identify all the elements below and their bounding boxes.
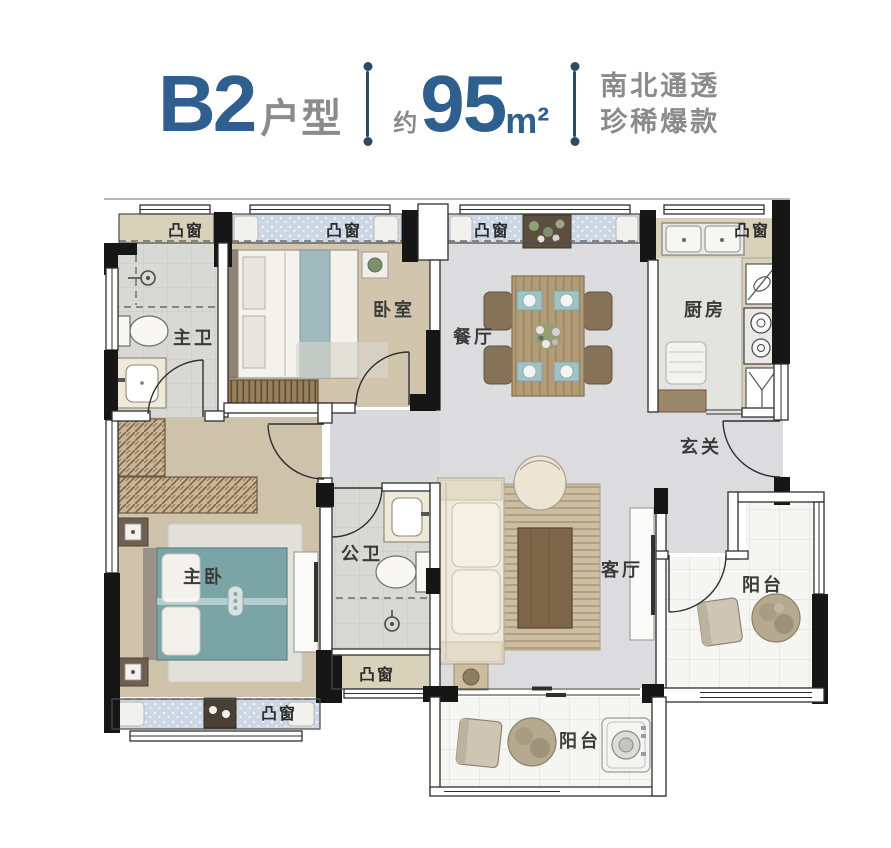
bedroom2-rug [296, 342, 388, 378]
bay-window-label: 凸窗 [261, 704, 297, 723]
room-label-master-bath: 主卫 [173, 327, 215, 348]
master-tv-console [294, 552, 318, 652]
room-label-guest-bath: 公卫 [341, 544, 383, 564]
master-bay-tray [204, 698, 236, 728]
bay-window-label: 凸窗 [359, 665, 395, 684]
living-coffee-table [518, 528, 572, 628]
room-label-entry: 玄关 [680, 436, 722, 457]
room-label-side-balcony: 阳台 [742, 574, 784, 595]
bedroom2-bench [226, 380, 318, 404]
bay-window-label: 凸窗 [326, 221, 362, 240]
floorplan-drawing: 主卫 卧室 餐厅 厨房 玄关 公卫 主卧 客厅 阳台 阳台 凸窗 凸窗 凸窗 凸… [0, 0, 891, 848]
master-nightstand-bottom [118, 658, 148, 686]
room-label-dining: 餐厅 [452, 326, 495, 347]
top-windows [140, 205, 764, 214]
dining-chair [584, 346, 612, 384]
master-bath-toilet [116, 316, 168, 346]
living-accent-chair [514, 456, 566, 510]
side-balcony-chair [697, 597, 743, 646]
room-label-living: 客厅 [601, 559, 643, 580]
south-balcony-chair [456, 718, 503, 768]
bedroom2-plant-icon [368, 258, 382, 272]
master-bed [143, 548, 287, 660]
bay-window-label: 凸窗 [474, 221, 510, 240]
living-side-table [454, 664, 488, 690]
side-balcony-plant [752, 594, 800, 642]
centerpiece-flowers-icon [535, 323, 561, 349]
room-label-kitchen: 厨房 [684, 299, 726, 320]
bay-window-label: 凸窗 [734, 221, 770, 240]
kitchen-sink [662, 223, 744, 255]
entry-shoe-cabinet [656, 390, 706, 412]
room-label-south-balcony: 阳台 [559, 730, 601, 751]
kitchen-appliance [666, 342, 706, 384]
dining-chair [484, 292, 512, 330]
south-balcony-plant [508, 718, 556, 766]
living-sofa [438, 478, 504, 664]
tv-icon [651, 535, 655, 615]
kitchen-prep-board-icon [746, 264, 776, 304]
sliding-door-tick [532, 687, 552, 691]
washing-machine-icon [602, 718, 650, 772]
entry-passage-floor [664, 492, 728, 553]
guest-bath-sink [384, 490, 430, 542]
dining-chair [484, 346, 512, 384]
kitchen-fridge-symbol [746, 368, 778, 410]
floorplan-page: B2 户型 约 95 m² 南北通透 珍稀爆款 [0, 0, 891, 848]
corridor-floor [330, 410, 440, 483]
master-wardrobe-vertical [117, 419, 165, 476]
master-nightstand-top [118, 518, 148, 546]
master-wardrobe-horizontal [119, 477, 257, 513]
room-label-master-bedroom: 主卧 [183, 566, 225, 587]
sliding-door-tick [546, 693, 566, 697]
bay-window-label: 凸窗 [168, 221, 204, 240]
dining-chair [584, 292, 612, 330]
room-label-second-bedroom: 卧室 [373, 299, 415, 320]
